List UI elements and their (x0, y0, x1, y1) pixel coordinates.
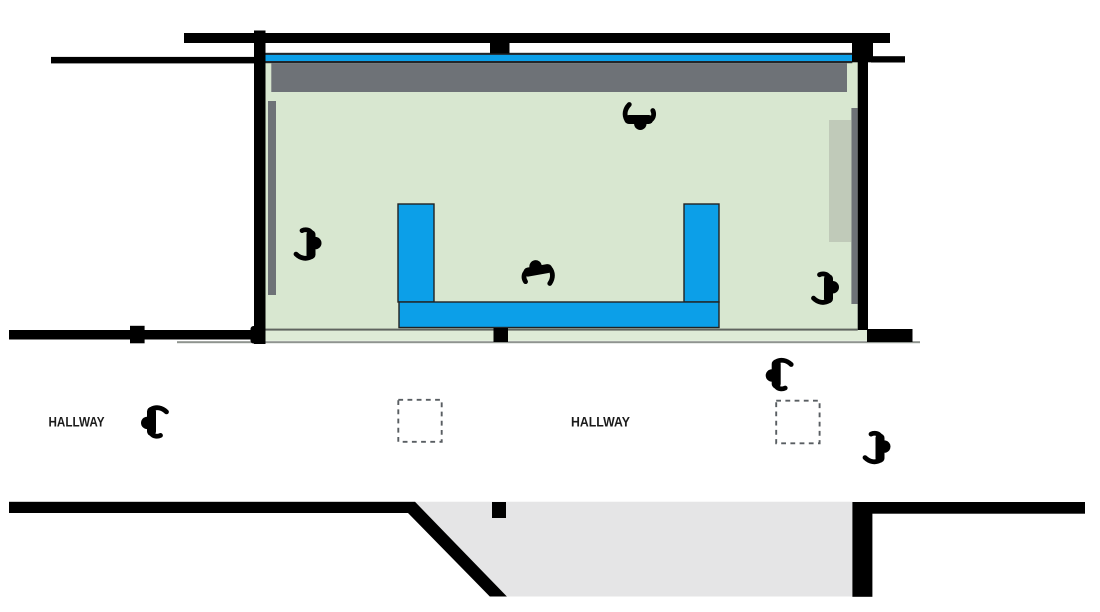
svg-text:HALLWAY: HALLWAY (571, 415, 630, 430)
svg-text:HALLWAY: HALLWAY (49, 415, 105, 430)
